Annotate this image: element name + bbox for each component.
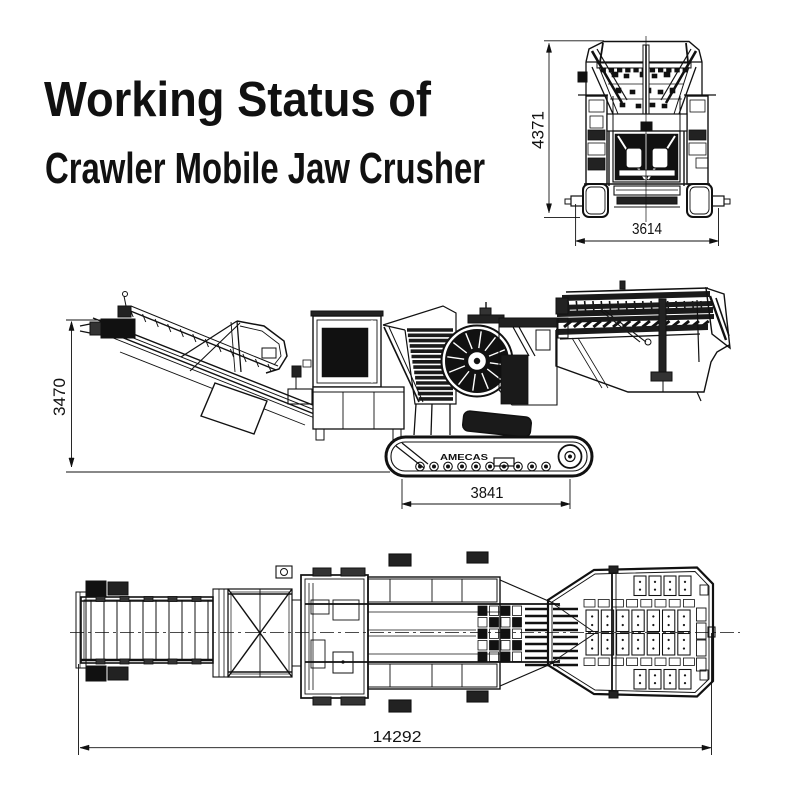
svg-text:Working Status of: Working Status of: [44, 73, 432, 127]
svg-text:Crawler Mobile Jaw Crusher: Crawler Mobile Jaw Crusher: [45, 144, 485, 193]
svg-text:3841: 3841: [471, 485, 504, 502]
svg-text:3470: 3470: [50, 378, 69, 416]
svg-text:4371: 4371: [529, 111, 548, 149]
svg-text:3614: 3614: [632, 221, 662, 238]
svg-text:14292: 14292: [373, 729, 422, 746]
svg-text:AMECAS: AMECAS: [440, 452, 488, 462]
